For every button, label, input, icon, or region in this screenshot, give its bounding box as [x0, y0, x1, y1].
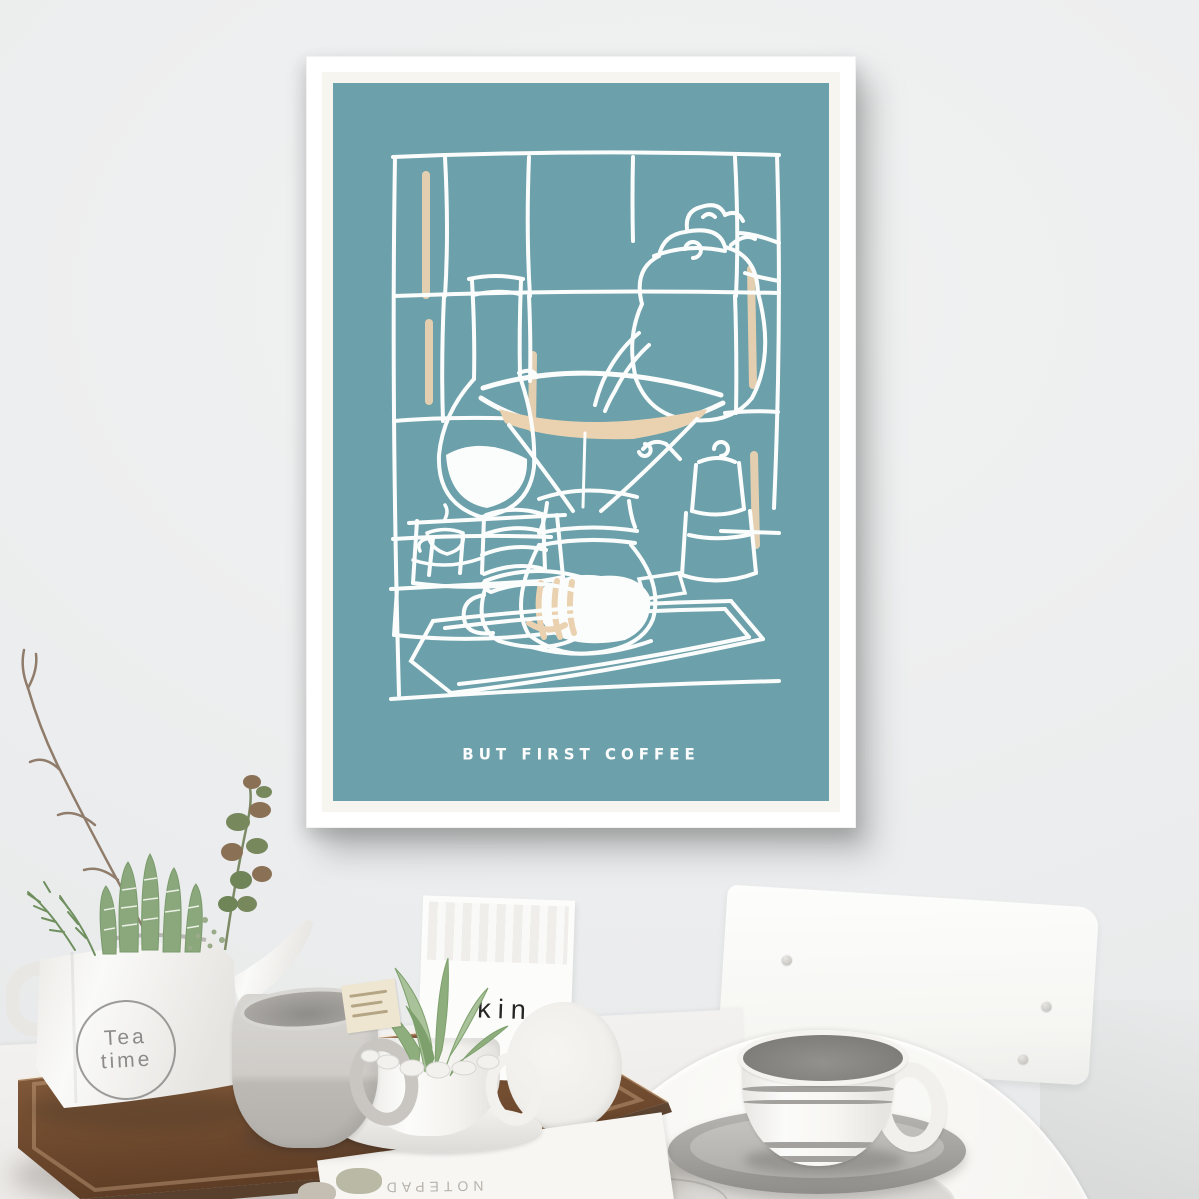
- poster-mat: BUT FIRST COFFEE: [322, 72, 840, 812]
- serving-tray-sketch: [391, 601, 779, 699]
- poster-print: BUT FIRST COFFEE: [333, 83, 829, 801]
- chair-screw: [1041, 1000, 1053, 1012]
- teapot-label-line2: time: [78, 1047, 175, 1075]
- chair-screw: [1017, 1053, 1029, 1065]
- tag-text-line: [352, 1010, 388, 1018]
- teapot-label-line1: Tea: [77, 1025, 174, 1053]
- cup-stripe: [742, 1156, 894, 1162]
- gift-tag: [341, 978, 401, 1033]
- fern-sprigs: [28, 882, 95, 955]
- coffee-sketch-illustration: [333, 83, 829, 801]
- tag-text-line: [349, 990, 387, 998]
- coffee-grinder: [639, 442, 756, 581]
- succulent-haworthia: [100, 854, 202, 954]
- tag-text-line: [351, 1000, 383, 1007]
- cup-stripe: [742, 1100, 894, 1104]
- poster-caption: BUT FIRST COFFEE: [333, 744, 829, 763]
- pebble-stone: [298, 1182, 336, 1199]
- poster-frame: BUT FIRST COFFEE: [306, 56, 856, 828]
- pebble-stone: [336, 1168, 382, 1194]
- cup-stripe: [742, 1142, 894, 1148]
- room-scene: BUT FIRST COFFEE: [0, 0, 1199, 1199]
- notepad-text: NOTEPAD: [382, 1178, 484, 1196]
- glass-bottle: [439, 276, 537, 517]
- coffee-cup: [738, 1030, 914, 1170]
- cup-stripe: [742, 1086, 894, 1092]
- cup-rim: [738, 1030, 908, 1086]
- chair-screw: [781, 954, 793, 966]
- plant-arrangement: [0, 640, 320, 960]
- eucalyptus-sprig: [218, 775, 272, 950]
